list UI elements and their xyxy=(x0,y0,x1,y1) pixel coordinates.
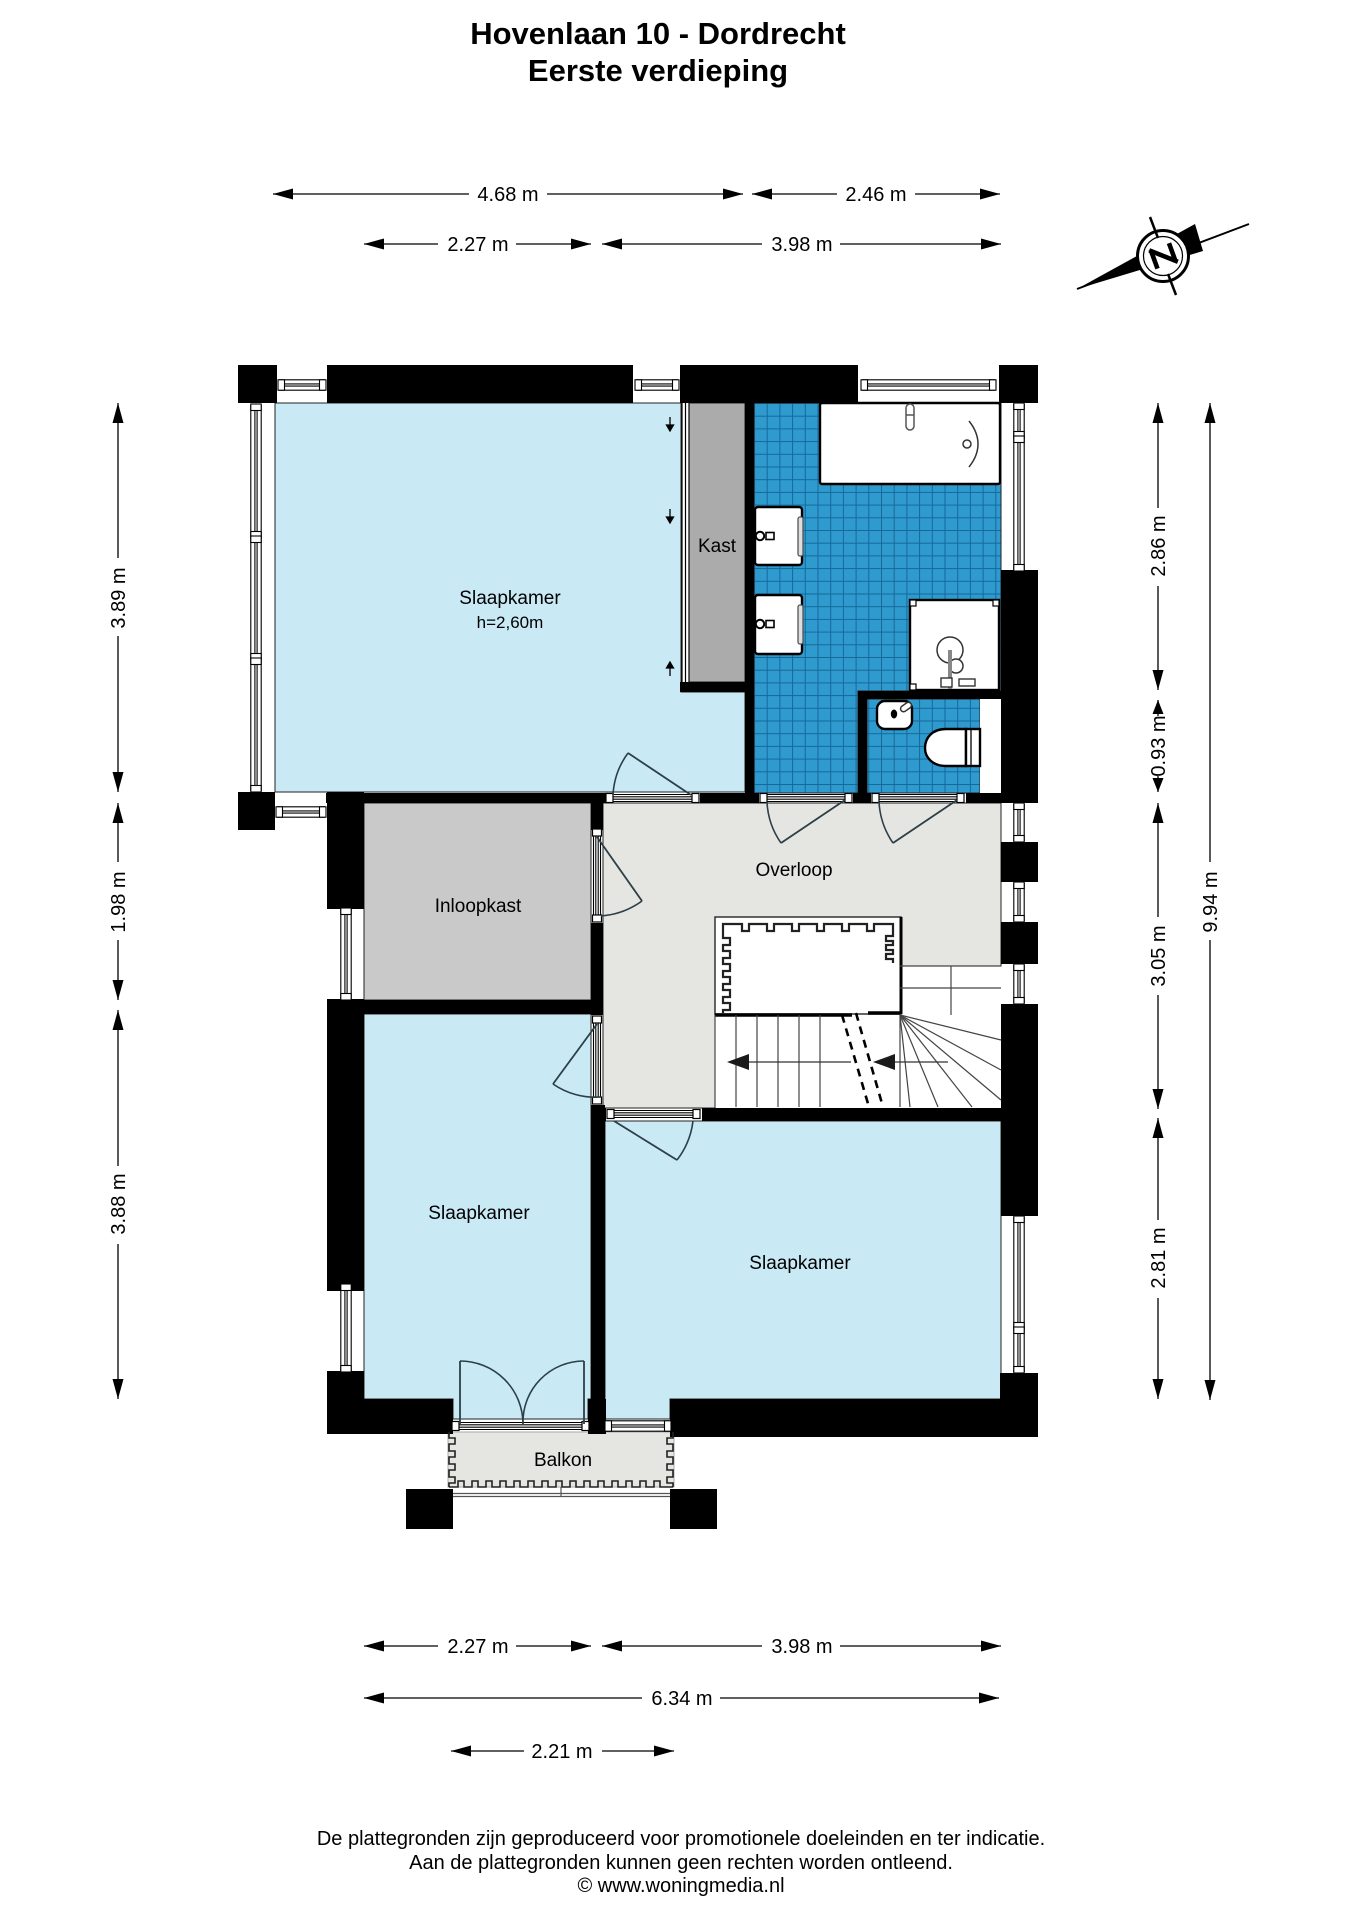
svg-text:9.94 m: 9.94 m xyxy=(1200,871,1222,932)
svg-text:3.89 m: 3.89 m xyxy=(108,567,130,628)
svg-text:Slaapkamer: Slaapkamer xyxy=(749,1253,851,1274)
svg-text:Eerste verdieping: Eerste verdieping xyxy=(528,53,788,88)
svg-text:2.86 m: 2.86 m xyxy=(1148,515,1170,576)
svg-text:2.46 m: 2.46 m xyxy=(845,184,906,206)
svg-text:Slaapkamer: Slaapkamer xyxy=(459,588,561,609)
svg-text:1.98 m: 1.98 m xyxy=(108,871,130,932)
svg-text:3.05 m: 3.05 m xyxy=(1148,925,1170,986)
svg-text:h=2,60m: h=2,60m xyxy=(477,613,544,632)
svg-text:0.93 m: 0.93 m xyxy=(1148,715,1170,776)
svg-text:Hovenlaan 10 - Dordrecht: Hovenlaan 10 - Dordrecht xyxy=(470,16,846,51)
svg-text:2.27 m: 2.27 m xyxy=(447,234,508,256)
svg-text:© www.woningmedia.nl: © www.woningmedia.nl xyxy=(577,1875,784,1897)
svg-text:3.98 m: 3.98 m xyxy=(771,1636,832,1658)
svg-text:4.68 m: 4.68 m xyxy=(477,184,538,206)
svg-text:Kast: Kast xyxy=(698,536,737,557)
svg-text:6.34 m: 6.34 m xyxy=(651,1688,712,1710)
svg-text:3.98 m: 3.98 m xyxy=(771,234,832,256)
svg-text:Inloopkast: Inloopkast xyxy=(435,896,522,917)
svg-text:2.81 m: 2.81 m xyxy=(1148,1227,1170,1288)
svg-text:Balkon: Balkon xyxy=(534,1450,592,1471)
svg-text:Aan de plattegronden kunnen ge: Aan de plattegronden kunnen geen rechten… xyxy=(409,1852,953,1874)
svg-text:2.21 m: 2.21 m xyxy=(531,1741,592,1763)
svg-text:Overloop: Overloop xyxy=(755,860,832,881)
svg-text:2.27 m: 2.27 m xyxy=(447,1636,508,1658)
svg-text:3.88 m: 3.88 m xyxy=(108,1173,130,1234)
svg-text:Slaapkamer: Slaapkamer xyxy=(428,1203,530,1224)
svg-text:De plattegronden zijn geproduc: De plattegronden zijn geproduceerd voor … xyxy=(317,1828,1045,1850)
